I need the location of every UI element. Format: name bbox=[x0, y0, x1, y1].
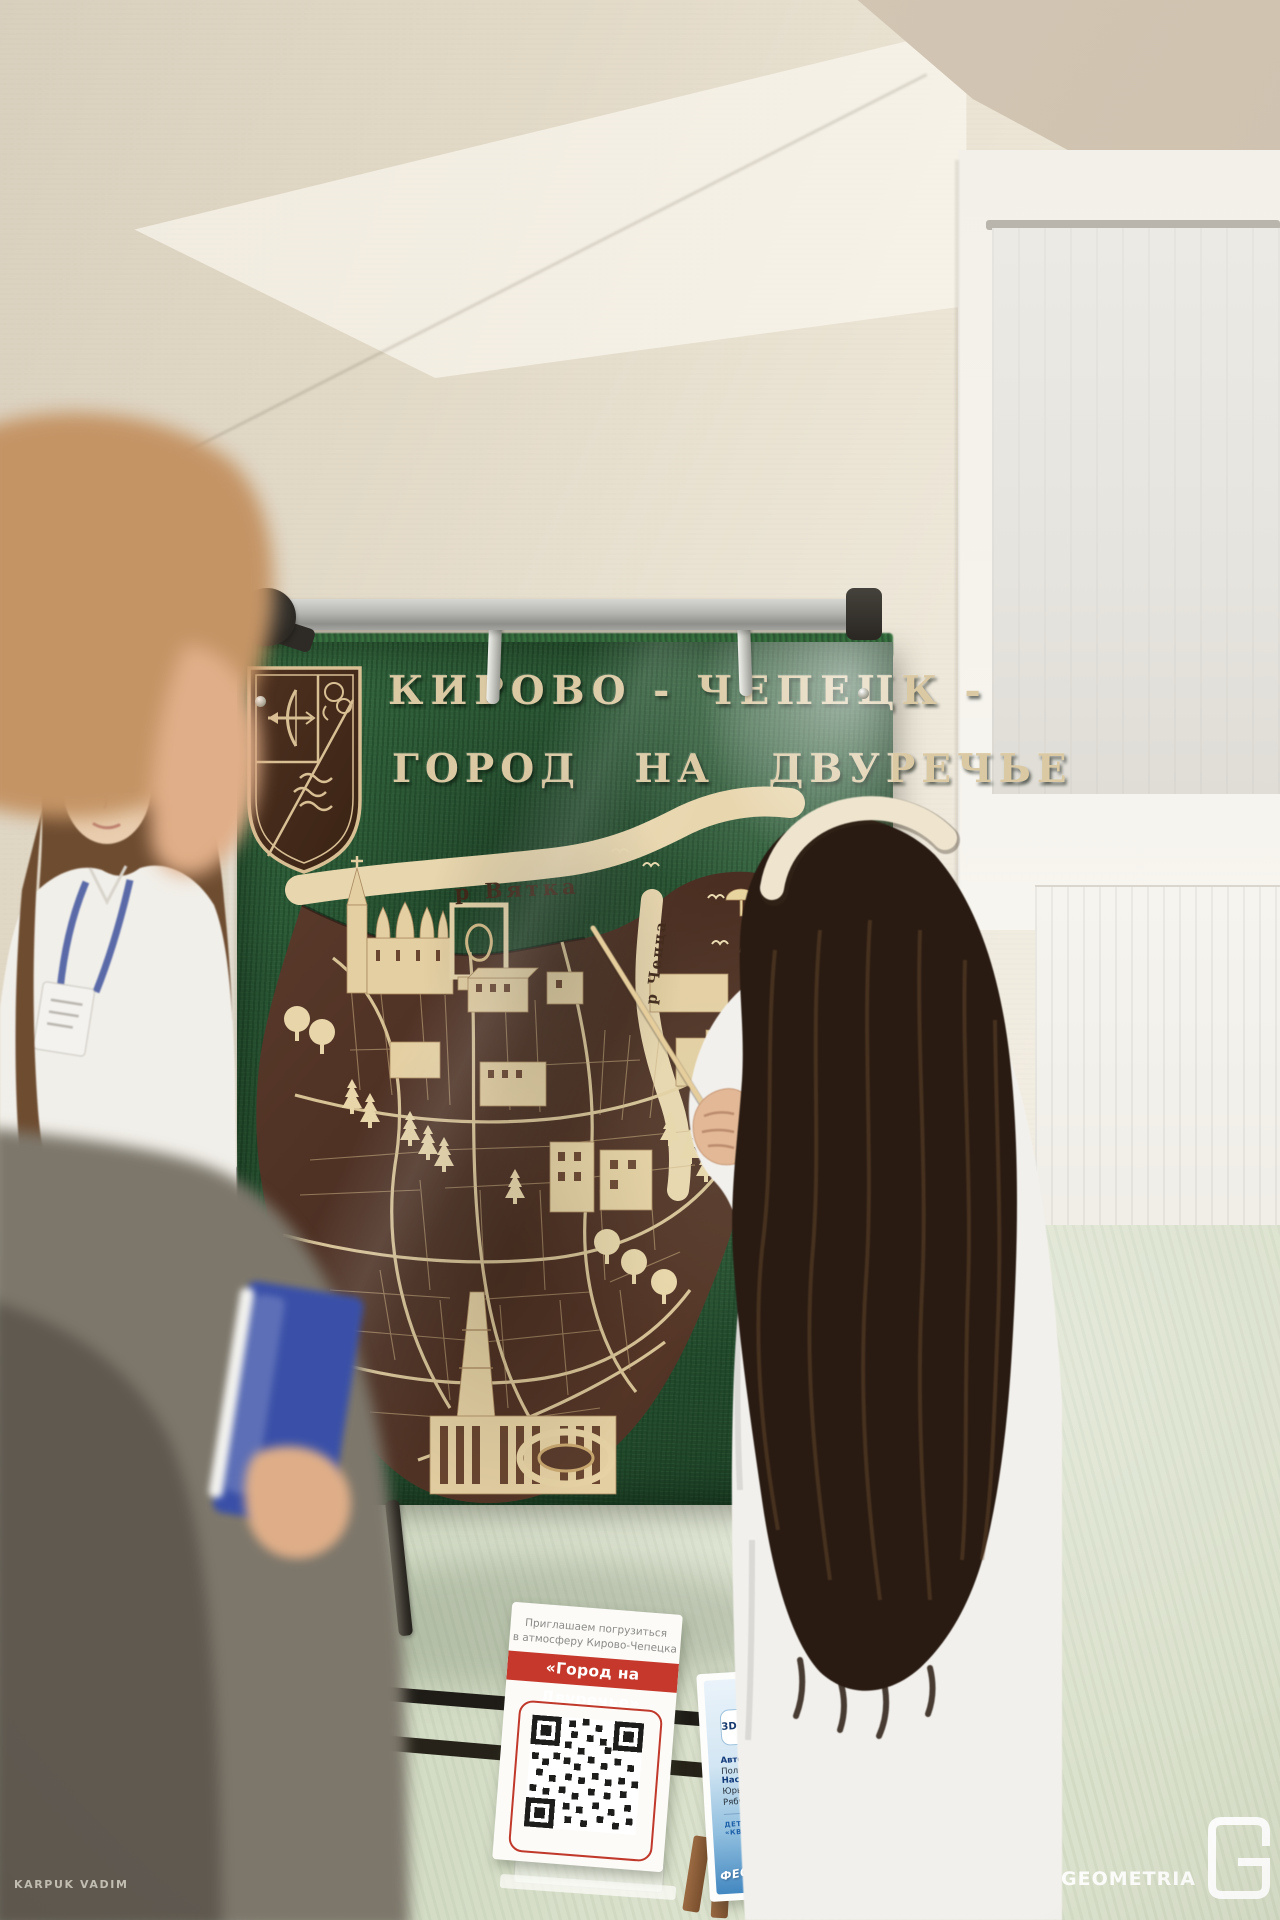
authors-label: Авторы: bbox=[720, 1754, 760, 1766]
rod-end-left bbox=[238, 588, 296, 646]
qr-invitation-sign: Приглашаем погрузиться в атмосферу Киров… bbox=[492, 1602, 683, 1873]
screw bbox=[858, 688, 869, 699]
qr-code-icon bbox=[524, 1715, 644, 1835]
display-rod bbox=[256, 599, 876, 630]
project-info-card: 3D-КАРТА «ГОРОД НА ДВУРЕЧЬЕ» Авторы: Шир… bbox=[696, 1662, 912, 1902]
info-card-festival: ФЕСТИВАЛЬ ИДЕЙ И ТЕХНОЛОГИЙ bbox=[719, 1836, 903, 1883]
qr-banner-title: «Город на Двуречье» bbox=[506, 1651, 679, 1693]
info-card-title: 3D-КАРТА «ГОРОД НА ДВУРЕЧЬЕ» bbox=[719, 1700, 881, 1746]
brand-name: GEOMETRIA bbox=[1061, 1868, 1196, 1890]
radiator-panel bbox=[1035, 885, 1280, 1252]
info-card-organization: ДЕТСКИЙ ТЕХНОПАРК «КВАНТОРИУМ» • КИРОВ bbox=[724, 1811, 895, 1837]
rod-end-right bbox=[846, 588, 882, 640]
brand-watermark: GEOMETRIA bbox=[1040, 1804, 1272, 1904]
board-title-line2: ГОРОД НА ДВУРЕЧЬЕ bbox=[392, 746, 1073, 792]
geometria-g-icon bbox=[1206, 1816, 1272, 1900]
screw bbox=[255, 696, 266, 707]
acrylic-sheet-edge bbox=[228, 690, 234, 1190]
board-title-line1: КИРОВО - ЧЕПЕЦК - bbox=[388, 668, 988, 714]
partner-logo-icon bbox=[778, 1686, 792, 1700]
partner-logo-icon bbox=[806, 1684, 820, 1698]
roller-blind bbox=[992, 228, 1280, 794]
photographer-credit: KARPUK VADIM bbox=[14, 1878, 129, 1891]
info-card-body: 3D-КАРТА «ГОРОД НА ДВУРЕЧЬЕ» Авторы: Шир… bbox=[704, 1669, 905, 1894]
photo-scene: КИРОВО - ЧЕПЕЦК - ГОРОД НА ДВУРЕЧЬЕ bbox=[0, 0, 1280, 1920]
wall-seam bbox=[955, 160, 959, 920]
